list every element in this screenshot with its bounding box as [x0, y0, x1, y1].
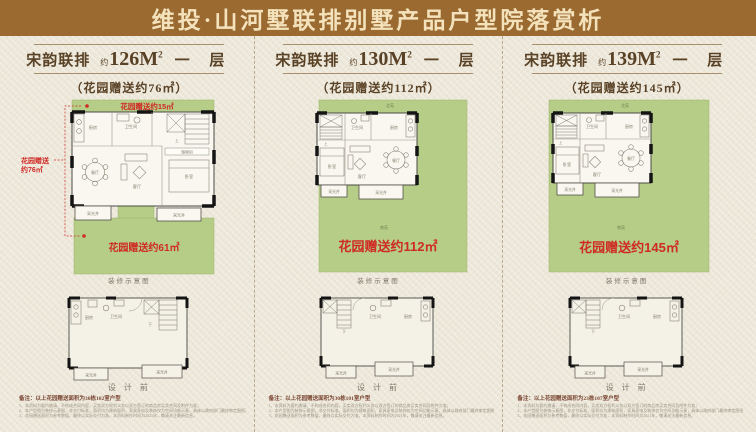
series-name: 宋韵联排 — [524, 49, 588, 70]
room-label-bedroom: 卧室 — [185, 173, 193, 180]
small-stairs-down: 下 — [591, 330, 595, 334]
unit-outline — [317, 113, 417, 185]
small-well-right-label: 采光井 — [637, 367, 649, 372]
well-left-label: 采光井 — [328, 189, 340, 194]
small-plan-caption: 设 计 前 — [255, 383, 503, 393]
panel-disclaimers: 1、本资料为要约邀请，不构成合同内容，买卖双方权利义务以双方签订的商品房买卖合同… — [269, 403, 495, 419]
main-plan-caption: 装修示意图 — [255, 278, 503, 286]
panel-130-header: 宋韵联排 约 130M2 一 层 — [283, 44, 473, 74]
room-label-living: 客厅 — [592, 171, 600, 178]
garden-main-label: 花园赠送约61㎡ — [108, 241, 179, 254]
room-label-bedroom: 卧室 — [562, 161, 570, 168]
room-label-kitchen: 厨房 — [89, 124, 97, 131]
approx-label: 约 — [349, 57, 357, 68]
small-unit-outline — [570, 298, 682, 366]
panel-note: 备注：以上花园赠送面积为30栋102室户型 — [19, 396, 254, 402]
small-room-kitchen: 厨房 — [85, 314, 93, 320]
garden-side-label-2: 约76㎡ — [21, 165, 43, 174]
small-room-bath: 卫生间 — [618, 313, 630, 319]
main-floorplan-126: 花园赠送 约76㎡ 花园赠送约15㎡ 花园赠送约61㎡ — [17, 98, 242, 278]
floor-label: 一 层 — [672, 49, 730, 70]
floor-label: 一 层 — [175, 49, 233, 70]
area-sup: 2 — [407, 49, 412, 59]
south-court-label: 南苑 — [380, 224, 388, 230]
area-sup: 2 — [158, 49, 163, 59]
panel-note: 备注：以上花园赠送面积为23栋107室户型 — [517, 396, 751, 402]
small-well-right-label: 采光井 — [157, 370, 169, 375]
small-plan-caption: 设 计 前 — [5, 383, 254, 393]
disclaimer-line: 3、花园赠送面积为参考数值，最终以实际交付为准，本资料制作时间为2021年，敬请… — [517, 413, 743, 418]
small-floorplan-126: 厨房 卫生间 下 采光井 采光井 — [44, 288, 214, 383]
room-label-bath: 卫生间 — [351, 124, 363, 130]
garden-total-subtitle: （花园赠送约145㎡） — [503, 79, 751, 96]
callout-dot-bottom — [82, 234, 86, 238]
area-value: 139M2 — [607, 48, 660, 71]
small-room-kitchen: 厨房 — [404, 313, 412, 319]
panel-disclaimers: 1、本资料为要约邀请，不构成合同内容，买卖双方权利义务以双方签订的商品房买卖合同… — [19, 403, 246, 419]
floor-label: 一 层 — [424, 49, 482, 70]
small-well-left-label: 采光井 — [584, 371, 596, 376]
room-label-bath: 卫生间 — [586, 123, 598, 129]
well-left-label: 采光井 — [564, 187, 576, 192]
garden-main-label: 花园赠送约145㎡ — [579, 240, 679, 255]
disclaimer-line: 3、花园赠送面积为参考数值，最终以实际交付为准，本资料制作时间为2021年，敬请… — [269, 413, 495, 418]
small-floorplan-130: 卫生间 厨房 下 采光井 采光井 — [293, 288, 463, 383]
series-name: 宋韵联排 — [26, 49, 90, 70]
disclaimer-line: 3、花园赠送面积为参考数值，最终以实际交付为准，本资料制作时间为2021年，敬请… — [19, 413, 246, 418]
room-label-dining: 餐厅 — [392, 157, 400, 163]
area-value: 126M2 — [109, 48, 162, 71]
panel-126-header: 宋韵联排 约 126M2 一 层 — [34, 44, 224, 74]
room-label-living: 客厅 — [133, 183, 141, 190]
south-court-label: 南苑 — [617, 224, 625, 230]
garden-total-subtitle: （花园赠送约112㎡） — [255, 79, 503, 96]
approx-label: 约 — [100, 57, 108, 68]
garden-side-label-1: 花园赠送 — [21, 156, 50, 165]
small-floorplan-139: 卫生间 厨房 下 采光井 采光井 — [542, 288, 712, 383]
small-unit-outline — [69, 298, 187, 368]
area-value: 130M2 — [358, 48, 411, 71]
room-label-bath: 卫生间 — [125, 123, 138, 130]
stairs-up-label: 上 — [175, 137, 179, 143]
small-well-left-label: 采光井 — [86, 373, 98, 378]
main-plan-caption: 装修示意图 — [5, 278, 254, 286]
small-stairs-down: 下 — [148, 323, 152, 327]
room-label-kitchen: 厨房 — [625, 123, 633, 129]
area-number: 139M — [607, 48, 656, 70]
area-number: 130M — [358, 48, 407, 70]
well-right-label: 采光井 — [375, 190, 387, 195]
page-title: 维投·山河墅联排别墅产品户型院落赏析 — [152, 1, 605, 35]
small-well-right-label: 采光井 — [389, 367, 401, 372]
panel-139: 宋韵联排 约 139M2 一 层 （花园赠送约145㎡） 北苑 南苑 — [502, 36, 751, 432]
area-sup: 2 — [656, 49, 661, 59]
well-right-label: 采光井 — [173, 212, 185, 218]
title-banner: 维投·山河墅联排别墅产品户型院落赏析 — [0, 0, 756, 36]
room-label-dining: 餐厅 — [627, 155, 635, 161]
panel-130: 宋韵联排 约 130M2 一 层 （花园赠送约112㎡） 北苑 南苑 — [254, 36, 503, 432]
panel-disclaimers: 1、本资料为要约邀请，不构成合同内容，买卖双方权利义务以双方签订的商品房买卖合同… — [517, 403, 743, 419]
small-room-kitchen: 厨房 — [653, 313, 661, 319]
room-label-kitchen: 厨房 — [390, 124, 398, 130]
main-floorplan-139: 北苑 南苑 上 — [515, 98, 740, 278]
garden-main-label: 花园赠送约112㎡ — [338, 239, 437, 254]
small-well-left-label: 采光井 — [336, 371, 348, 376]
room-label-storage: 储物间 — [181, 149, 193, 154]
well-right-label: 采光井 — [611, 188, 623, 193]
main-floorplan-130: 北苑 南苑 上 — [266, 98, 491, 278]
well-left-label: 采光井 — [87, 210, 99, 216]
callout-dot-top — [85, 104, 89, 108]
area-number: 126M — [109, 48, 158, 70]
panel-126: 宋韵联排 约 126M2 一 层 （花园赠送约76㎡） 花园赠送 约76㎡ — [5, 36, 254, 432]
series-name: 宋韵联排 — [275, 49, 339, 70]
garden-top-label: 花园赠送约15㎡ — [120, 101, 174, 111]
small-room-bath: 卫生间 — [110, 313, 122, 319]
panel-note: 备注：以上花园赠送面积为30栋101室户型 — [269, 396, 503, 402]
approx-label: 约 — [598, 57, 606, 68]
stairs-up-label: 上 — [559, 140, 563, 145]
main-plan-caption: 装修示意图 — [503, 278, 751, 286]
unit-outline — [553, 113, 651, 183]
room-label-living: 客厅 — [358, 173, 366, 180]
north-court-label: 北苑 — [621, 102, 629, 108]
room-label-dining: 餐厅 — [91, 169, 99, 175]
north-court-label: 北苑 — [386, 102, 394, 108]
stairs-up-label: 上 — [324, 141, 328, 146]
small-room-bath: 卫生间 — [369, 313, 381, 319]
small-stairs-down: 下 — [343, 330, 347, 334]
room-label-bedroom: 卧室 — [328, 163, 336, 170]
panels-row: 宋韵联排 约 126M2 一 层 （花园赠送约76㎡） 花园赠送 约76㎡ — [0, 36, 756, 432]
panel-139-header: 宋韵联排 约 139M2 一 层 — [532, 44, 722, 74]
small-plan-caption: 设 计 前 — [503, 383, 751, 393]
small-unit-outline — [321, 298, 433, 366]
garden-total-subtitle: （花园赠送约76㎡） — [5, 79, 254, 96]
